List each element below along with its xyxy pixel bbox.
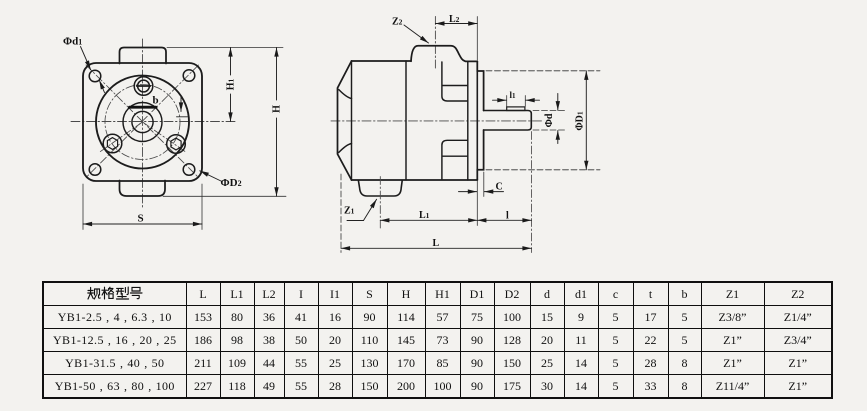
svg-text:l: l bbox=[506, 210, 509, 221]
svg-text:L1: L1 bbox=[419, 210, 430, 221]
svg-text:Z1: Z1 bbox=[344, 206, 355, 217]
svg-text:ΦD1: ΦD1 bbox=[575, 111, 586, 131]
svg-text:L: L bbox=[433, 238, 440, 249]
svg-text:Φd: Φd bbox=[544, 113, 555, 127]
svg-text:b: b bbox=[153, 95, 159, 107]
svg-text:H: H bbox=[272, 105, 283, 113]
svg-text:l1: l1 bbox=[510, 90, 517, 100]
svg-text:C: C bbox=[496, 181, 503, 192]
svg-text:Z2: Z2 bbox=[392, 17, 403, 28]
svg-text:S: S bbox=[138, 213, 144, 225]
svg-text:Φd1: Φd1 bbox=[63, 36, 82, 48]
svg-text:ΦD2: ΦD2 bbox=[221, 177, 242, 189]
svg-text:L2: L2 bbox=[449, 14, 460, 25]
svg-text:H1: H1 bbox=[226, 78, 237, 90]
